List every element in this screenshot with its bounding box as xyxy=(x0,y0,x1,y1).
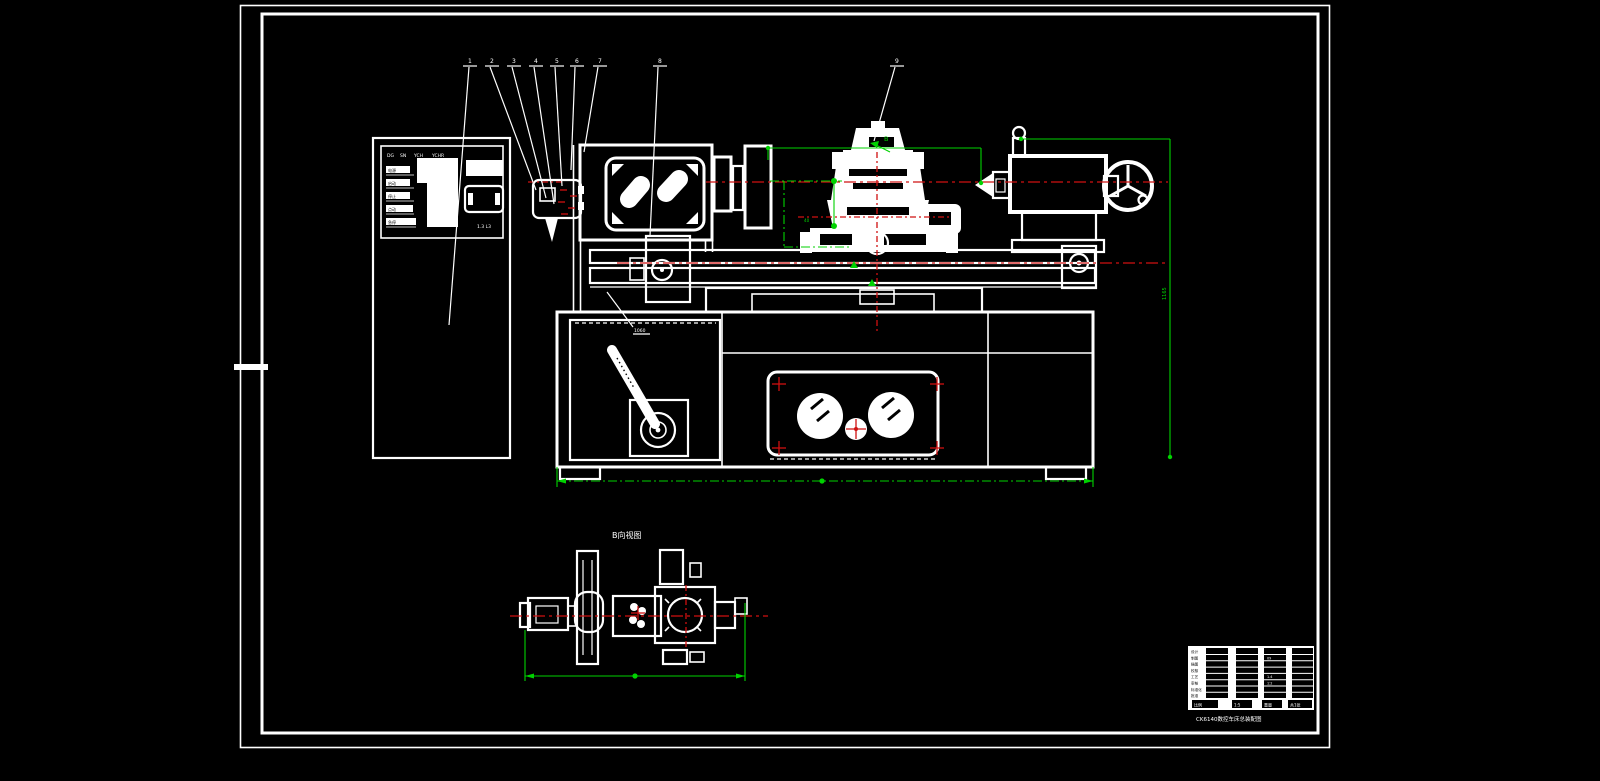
dim-text-right: 1165 xyxy=(1162,287,1168,300)
panel-label: DG xyxy=(387,153,394,159)
balloon: 9 xyxy=(895,58,899,65)
title-bottom-cell: 共1张 xyxy=(1290,702,1301,708)
lever-slot-right xyxy=(666,179,679,193)
tailstock xyxy=(975,127,1152,252)
title-row: 标准化 xyxy=(1191,687,1202,692)
balloon: 7 xyxy=(598,58,602,65)
title-cell-value: 09 xyxy=(1267,656,1271,660)
machine-foot xyxy=(1046,467,1086,479)
panel-footer: 1.3 L3 xyxy=(477,224,491,230)
title-bottom-cell: 比例 xyxy=(1194,702,1202,708)
panel-button-label: 急停 xyxy=(388,219,396,225)
balloon: 5 xyxy=(555,58,559,65)
title-row: 设计 xyxy=(1191,649,1199,654)
balloon: 8 xyxy=(658,58,662,65)
balloon: 3 xyxy=(512,58,516,65)
panel-button-label: 电源 xyxy=(388,167,396,173)
title-row: 描图 xyxy=(1191,662,1199,667)
panel-display xyxy=(417,158,458,227)
title-row: 工艺 xyxy=(1191,674,1199,679)
panel-buttons: 电源 启动 停止 点动 急停 xyxy=(386,166,416,227)
dim-text-toolpost: 40 xyxy=(804,218,810,223)
control-cabinet: DG SN YCH YCHR 电源 启动 停止 点动 急停 1.3 L3 xyxy=(373,138,510,458)
handwheel-panel xyxy=(768,372,944,459)
balloon: 2 xyxy=(490,58,494,65)
lever-slot-left xyxy=(629,185,641,199)
title-row: 审核 xyxy=(1191,681,1199,686)
balloon: 4 xyxy=(534,58,538,65)
title-cell-value: 1:2 xyxy=(1267,682,1272,686)
carriage-apron xyxy=(706,288,982,312)
machine-foot xyxy=(560,467,600,479)
panel-button-label: 停止 xyxy=(388,193,396,199)
cad-canvas[interactable]: DG SN YCH YCHR 电源 启动 停止 点动 急停 1.3 L3 xyxy=(0,0,1600,781)
title-row: 校核 xyxy=(1191,668,1199,673)
left-bracket xyxy=(533,180,584,242)
leader-note: 1060 xyxy=(634,328,646,334)
gear-cover xyxy=(606,158,704,230)
bed xyxy=(590,250,1095,287)
title-bottom-cell: 1:5 xyxy=(1234,703,1241,708)
title-row: 批准 xyxy=(1191,693,1199,698)
title-row: 制图 xyxy=(1191,655,1199,660)
tool-post xyxy=(800,121,961,254)
drawing-frame xyxy=(234,6,1330,748)
balloon-numbers: 1 2 3 4 5 6 7 8 9 xyxy=(463,58,904,66)
spindle-chuck xyxy=(714,146,771,228)
lever-handle xyxy=(612,350,688,456)
title-block-caption: CK6140数控车床总装配图 xyxy=(1196,715,1262,723)
panel-button-label: 启动 xyxy=(388,180,396,186)
view-b: B向视图 xyxy=(510,530,768,681)
title-block: 设计 制图 描图 校核 工艺 审核 标准化 批准 09 1.4 1:2 比例 1… xyxy=(1188,646,1314,723)
title-cell-value: 1.4 xyxy=(1267,675,1272,679)
dead-center xyxy=(975,173,993,197)
panel-button-label: 点动 xyxy=(388,206,396,212)
balloon: 1 xyxy=(468,58,472,65)
panel-label: SN xyxy=(400,153,406,159)
balloon: 6 xyxy=(575,58,579,65)
view-b-arrow-label: B xyxy=(884,135,888,143)
view-b-title: B向视图 xyxy=(612,530,642,540)
title-bottom-cell: 重量 xyxy=(1264,702,1272,708)
cad-drawing: DG SN YCH YCHR 电源 启动 停止 点动 急停 1.3 L3 xyxy=(0,0,1600,781)
